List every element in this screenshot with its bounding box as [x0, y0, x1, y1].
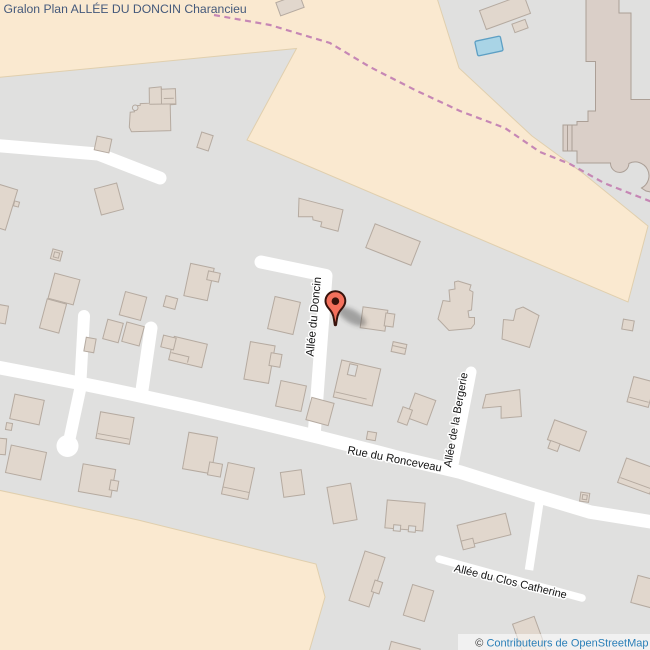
svg-text:Gralon Plan ALLÉE DU DONCIN Ch: Gralon Plan ALLÉE DU DONCIN Charancieu	[4, 1, 247, 16]
svg-text:© Contributeurs de OpenStreetM: © Contributeurs de OpenStreetMap	[475, 638, 648, 650]
